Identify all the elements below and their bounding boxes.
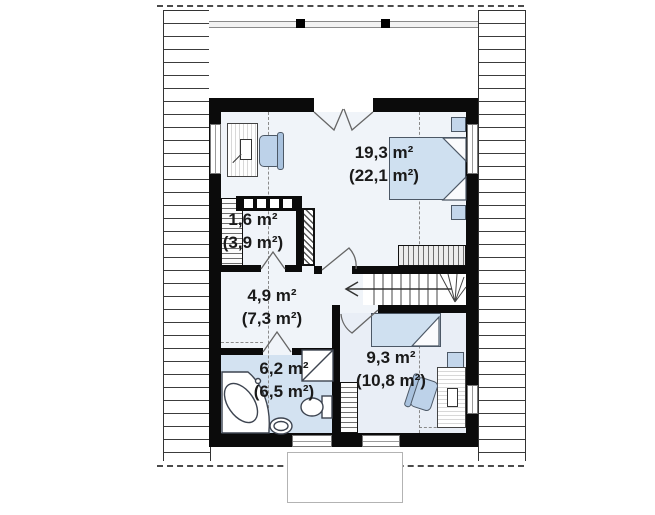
window-left bbox=[210, 124, 221, 174]
wall-bathroom-top bbox=[292, 348, 332, 355]
window-bedroom-large bbox=[467, 124, 478, 174]
area-total-label: (10,8 m²) bbox=[356, 371, 426, 390]
wall bbox=[373, 98, 478, 112]
area-label: 4,9 m² bbox=[247, 286, 296, 305]
desk-computer bbox=[447, 388, 458, 407]
railing-post bbox=[296, 19, 305, 28]
wall-glazing bbox=[244, 199, 253, 208]
roof-overhang-left bbox=[163, 10, 211, 461]
area-label: 6,2 m² bbox=[259, 359, 308, 378]
room-label-bathroom: 6,2 m² (6,5 m²) bbox=[254, 357, 314, 403]
roof-overhang-right bbox=[478, 10, 526, 461]
wall-storage-bottom bbox=[221, 265, 261, 272]
wall bbox=[378, 305, 466, 313]
wall bbox=[314, 266, 322, 274]
area-total-label: (3,9 m²) bbox=[223, 233, 283, 252]
wall-bathroom-top bbox=[221, 348, 263, 355]
bed-single bbox=[371, 313, 441, 347]
wardrobe-bedroom-large bbox=[398, 245, 466, 266]
wall-glazing bbox=[270, 199, 279, 208]
room-label-bedroom-small: 9,3 m² (10,8 m²) bbox=[356, 346, 426, 392]
area-total-label: (22,1 m²) bbox=[349, 166, 419, 185]
room-label-hall: 4,9 m² (7,3 m²) bbox=[242, 284, 302, 330]
room-label-storage: 1,6 m² (3,9 m²) bbox=[223, 208, 283, 254]
railing-post bbox=[381, 19, 390, 28]
desk-computer bbox=[240, 139, 252, 160]
room-label-bedroom-large: 19,3 m² (22,1 m²) bbox=[349, 141, 419, 187]
chimney bbox=[302, 208, 315, 266]
wall bbox=[209, 433, 478, 447]
area-label: 9,3 m² bbox=[366, 348, 415, 367]
dormer-outline bbox=[287, 452, 403, 503]
nightstand bbox=[451, 117, 466, 132]
area-total-label: (7,3 m²) bbox=[242, 309, 302, 328]
window-bedroom-small bbox=[362, 435, 400, 447]
staircase bbox=[363, 274, 466, 305]
nightstand bbox=[451, 205, 466, 220]
terrace-railing bbox=[209, 21, 478, 28]
floor-plan: 19,3 m² (22,1 m²) 1,6 m² (3,9 m²) 4,9 m²… bbox=[0, 0, 655, 515]
area-label: 19,3 m² bbox=[355, 143, 414, 162]
knee-wall-line bbox=[221, 342, 263, 343]
wall-glazing bbox=[257, 199, 266, 208]
area-label: 1,6 m² bbox=[228, 210, 277, 229]
desk-chair-back bbox=[277, 132, 284, 170]
window-bathroom bbox=[292, 435, 332, 447]
wall bbox=[340, 305, 378, 308]
wall bbox=[332, 305, 340, 433]
wall bbox=[209, 98, 314, 112]
window-bedroom-small-side bbox=[467, 385, 478, 414]
wall-glazing bbox=[283, 199, 292, 208]
wall bbox=[352, 266, 466, 274]
roof-edge-dashed-top bbox=[157, 5, 524, 7]
area-total-label: (6,5 m²) bbox=[254, 382, 314, 401]
